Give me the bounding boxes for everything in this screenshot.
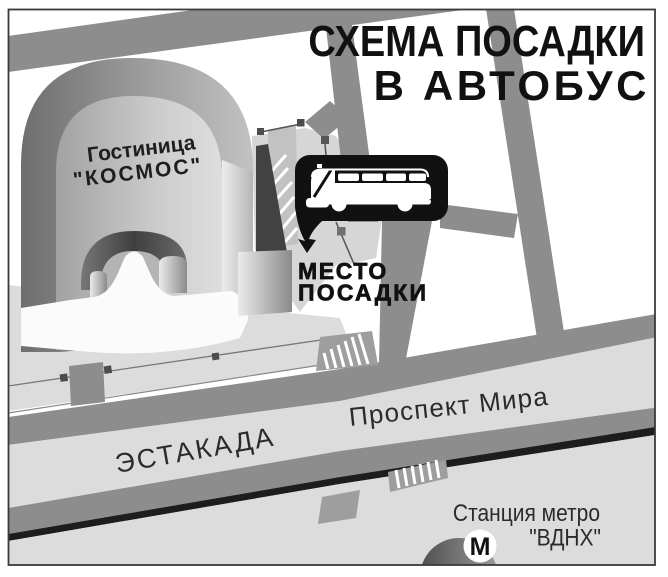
- svg-text:М: М: [470, 533, 491, 561]
- svg-text:СХЕМА ПОСАДКИ: СХЕМА ПОСАДКИ: [308, 16, 645, 65]
- svg-text:ПОСАДКИ: ПОСАДКИ: [298, 280, 428, 306]
- svg-text:В АВТОБУС: В АВТОБУС: [374, 62, 650, 109]
- svg-text:"ВДНХ": "ВДНХ": [529, 524, 601, 551]
- svg-text:Станция метро: Станция метро: [453, 500, 600, 527]
